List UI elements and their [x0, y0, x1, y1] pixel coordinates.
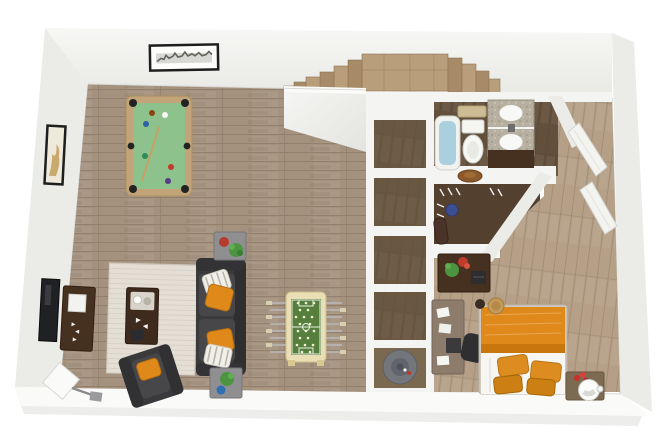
stair-landing [362, 54, 448, 91]
floorplan-image [0, 0, 660, 440]
bowl [133, 296, 141, 304]
floorplan-canvas [0, 0, 660, 440]
potted-plant [220, 372, 234, 386]
stair-step [334, 66, 348, 91]
red-bowl [219, 237, 229, 247]
heater-valve-red [407, 371, 411, 375]
duvet-fold [481, 344, 565, 353]
framed-cityscape-art [150, 44, 218, 70]
bathtub-water [439, 121, 456, 165]
side-table-north [214, 232, 246, 260]
tablet [130, 329, 145, 342]
stair-step [462, 64, 476, 93]
sofa [196, 258, 246, 376]
sofa-backrest [234, 262, 246, 372]
vanity-cabinet [488, 150, 534, 168]
framed-abstract-art [44, 126, 65, 185]
stair-step [448, 58, 462, 92]
desk-upper [438, 254, 490, 292]
stair-step [348, 60, 362, 91]
tv-and-console [38, 279, 96, 352]
laptop [446, 338, 461, 353]
nightstand [566, 372, 604, 401]
stair-step [489, 79, 500, 94]
desk-lower [432, 300, 464, 374]
bed [479, 305, 567, 396]
pool-table [126, 96, 192, 196]
sink-reflection [499, 105, 523, 122]
stair-step [476, 71, 489, 93]
sink [499, 134, 523, 151]
console-decor-box [68, 294, 86, 312]
water-heater [383, 350, 417, 384]
orange-pillow [497, 354, 529, 377]
potted-plant [445, 263, 459, 277]
cup-handle [597, 386, 603, 392]
potted-plant [229, 243, 243, 257]
tv-reflection [45, 285, 52, 305]
towel-rack [458, 106, 486, 117]
dark-basket [475, 299, 485, 309]
orange-pillow [526, 378, 555, 396]
heater-valve-white [403, 368, 406, 371]
pool-table-felt [133, 103, 185, 189]
orange-pillow [493, 375, 523, 395]
paper [439, 323, 452, 333]
storage-basket [488, 298, 504, 314]
toilet [462, 120, 484, 163]
blue-globe [217, 386, 226, 395]
coffee-table [125, 288, 158, 345]
faucet [508, 124, 515, 132]
side-table-south [210, 368, 242, 398]
vanity [488, 100, 534, 168]
lamp-base [89, 391, 102, 402]
paper [437, 356, 450, 366]
